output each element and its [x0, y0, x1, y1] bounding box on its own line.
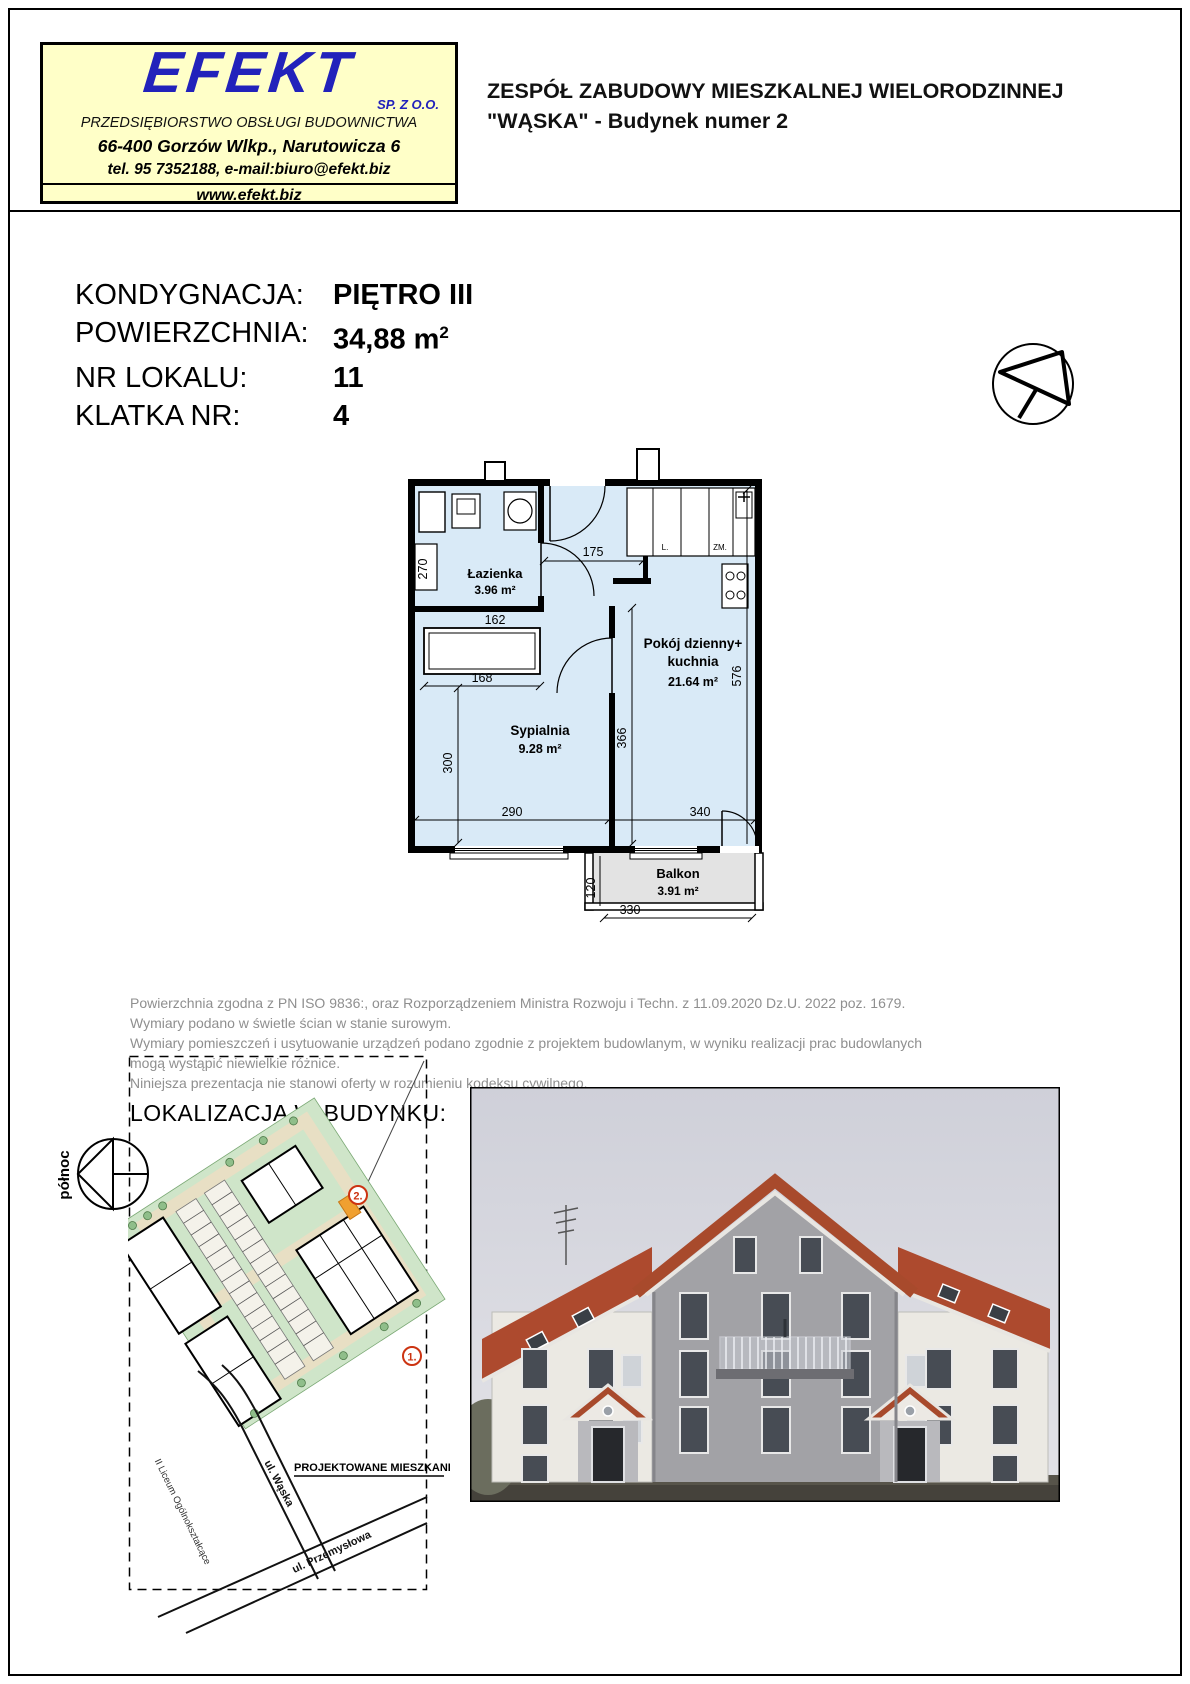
room-label-bedroom: Sypialnia [510, 723, 570, 738]
disclaimer-line: Powierzchnia zgodna z PN ISO 9836:, oraz… [130, 993, 940, 1013]
dim-living-depth: 366 [615, 728, 629, 749]
detail-row-unit-number: NR LOKALU: 11 [75, 359, 473, 397]
designed-apartment-label: PROJEKTOWANE MIESZKANIE [294, 1462, 450, 1474]
detail-label: POWIERZCHNIA: [75, 314, 333, 359]
room-area-bedroom: 9.28 m² [518, 742, 561, 756]
room-label-living-2: kuchnia [667, 654, 719, 669]
detail-row-staircase: KLATKA NR: 4 [75, 397, 473, 435]
room-label-balcony: Balkon [656, 866, 699, 881]
title-line-2: "WĄSKA" - Budynek numer 2 [487, 106, 1097, 136]
room-label-living-1: Pokój dzienny+ [644, 636, 743, 651]
school-label: II Liceum Ogólnokształcące [152, 1457, 213, 1566]
washing-machine-icon [504, 492, 536, 530]
dim-duct: 270 [416, 559, 430, 580]
building-photo [470, 1087, 1060, 1502]
svg-text:2.: 2. [353, 1191, 362, 1203]
detail-value: PIĘTRO III [333, 276, 473, 314]
detail-label: KLATKA NR: [75, 397, 333, 435]
detail-row-area: POWIERZCHNIA: 34,88 m2 [75, 314, 473, 359]
detail-label: NR LOKALU: [75, 359, 333, 397]
company-website: www.efekt.biz [43, 183, 455, 205]
disclaimer-line: Wymiary podano w świetle ścian w stanie … [130, 1013, 940, 1033]
wardrobe-icon [424, 628, 540, 674]
apartment-details: KONDYGNACJA: PIĘTRO III POWIERZCHNIA: 34… [75, 276, 473, 435]
room-area-balcony: 3.91 m² [657, 884, 698, 898]
dim-living-height: 576 [730, 666, 744, 687]
company-logo-box: EFEKT SP. Z O.O. PRZEDSIĘBIORSTWO OBSŁUG… [40, 42, 458, 204]
room-area-living: 21.64 m² [668, 675, 718, 689]
stove-icon [722, 564, 748, 608]
fixture-label-freezer: ZM. [713, 543, 727, 552]
fixture-label-fridge: L. [662, 543, 669, 552]
room-area-bathroom: 3.96 m² [474, 583, 515, 597]
company-address: 66-400 Gorzów Wlkp., Narutowicza 6 [43, 136, 455, 157]
dim-hall: 175 [583, 545, 604, 559]
company-legal-form: SP. Z O.O. [377, 97, 439, 112]
building-marker-2: 2. [349, 1186, 367, 1204]
site-plan-cluster [128, 1098, 445, 1431]
header-divider [8, 210, 1182, 212]
company-descriptor: PRZEDSIĘBIORSTWO OBSŁUGI BUDOWNICTWA [43, 115, 455, 131]
flyer-page: EFEKT SP. Z O.O. PRZEDSIĘBIORSTWO OBSŁUG… [0, 0, 1190, 1684]
detail-row-floor: KONDYGNACJA: PIĘTRO III [75, 276, 473, 314]
north-label: północ [56, 1150, 73, 1199]
floor-plan: L. ZM. 175 270 [400, 448, 790, 940]
dim-balcony-depth: 120 [584, 878, 598, 899]
title-line-1: ZESPÓŁ ZABUDOWY MIESZKALNEJ WIELORODZINN… [487, 76, 1097, 106]
svg-text:1.: 1. [407, 1352, 416, 1364]
leader-line [361, 1061, 424, 1197]
north-arrow-icon [990, 336, 1078, 432]
dim-wardrobe: 168 [472, 671, 493, 685]
room-label-bathroom: Łazienka [468, 566, 524, 581]
building-marker-1: 1. [403, 1347, 421, 1365]
site-plan: 2. 1. ul. Wąska ul. Przemysłowa II Liceu… [128, 1055, 450, 1635]
dim-bedroom-width: 290 [502, 805, 523, 819]
dim-balcony-width: 330 [620, 903, 641, 917]
dim-living-width: 340 [690, 805, 711, 819]
detail-value: 34,88 m2 [333, 314, 449, 359]
detail-label: KONDYGNACJA: [75, 276, 333, 314]
detail-value: 4 [333, 397, 349, 435]
detail-value: 11 [333, 359, 364, 397]
company-contact: tel. 95 7352188, e-mail:biuro@efekt.biz [43, 161, 455, 179]
dim-bedroom-depth: 300 [441, 753, 455, 774]
duct-shaft-icon [419, 492, 445, 532]
superscript: 2 [439, 323, 448, 342]
disclaimer-line: Wymiary pomieszczeń i usytuowanie urządz… [130, 1033, 940, 1053]
document-title: ZESPÓŁ ZABUDOWY MIESZKALNEJ WIELORODZINN… [487, 76, 1097, 136]
company-logo: EFEKT [39, 39, 458, 106]
dim-bath-width: 162 [485, 613, 506, 627]
